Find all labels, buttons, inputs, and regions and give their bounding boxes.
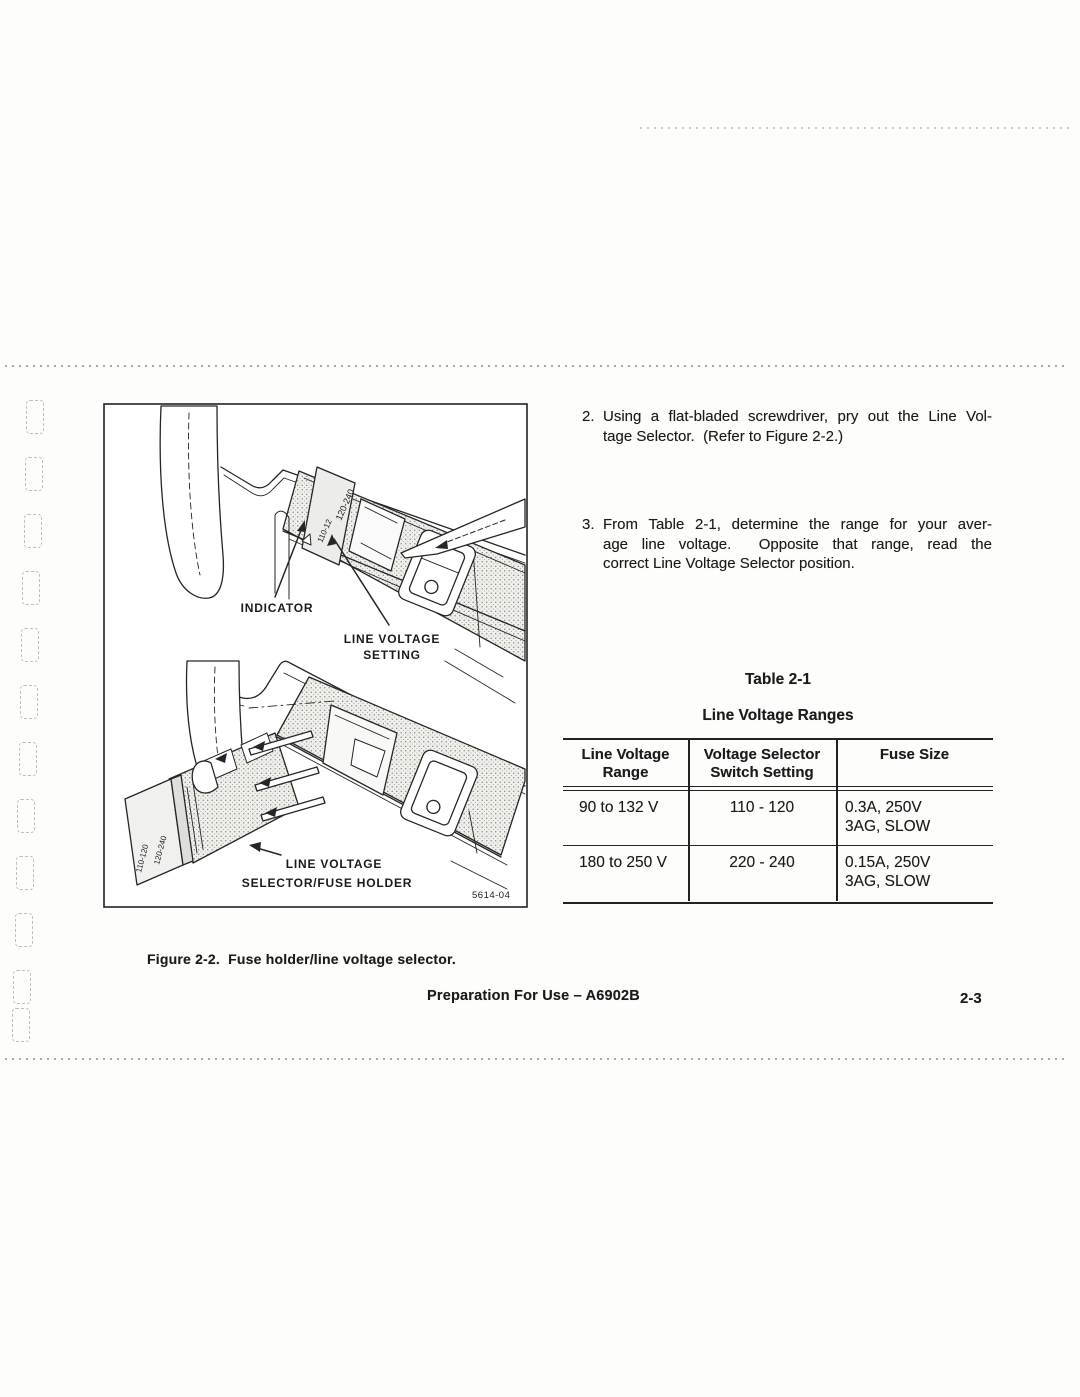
label-indicator: INDICATOR <box>241 601 314 615</box>
step-number: 2. <box>582 407 595 427</box>
line-voltage-table: Line Voltage Range Voltage Selector Swit… <box>563 738 993 904</box>
cell-setting: 110 - 120 <box>688 791 836 845</box>
col-header-range: Line Voltage Range <box>563 740 688 786</box>
cell-setting: 220 - 240 <box>688 846 836 902</box>
label-line-voltage-setting: LINE VOLTAGE <box>344 632 441 646</box>
scan-dotted-line-bottom <box>5 1058 1065 1060</box>
binder-hole <box>24 514 42 548</box>
page-number: 2-3 <box>960 990 982 1007</box>
figure-drawing: 120-240 110-12 INDICATOR LINE VOLTAGE SE… <box>103 403 528 908</box>
binder-hole <box>16 856 34 890</box>
col-header-switch-setting: Voltage Selector Switch Setting <box>688 740 836 786</box>
figure-part-number: 5614-04 <box>472 890 510 901</box>
scan-dotted-line-top <box>640 127 1070 129</box>
column-divider <box>688 740 690 901</box>
col-header-fuse-size: Fuse Size <box>836 740 993 786</box>
binder-hole <box>22 571 40 605</box>
figure-2-2: 120-240 110-12 INDICATOR LINE VOLTAGE SE… <box>103 403 528 908</box>
binder-hole <box>13 970 31 1004</box>
binder-hole <box>26 400 44 434</box>
cell-range: 90 to 132 V <box>563 791 688 845</box>
cell-fuse: 0.3A, 250V 3AG, SLOW <box>836 791 993 845</box>
binder-hole <box>17 799 35 833</box>
binder-hole <box>15 913 33 947</box>
step-text-line: age line voltage. Opposite that range, r… <box>603 535 992 555</box>
column-divider <box>836 740 838 901</box>
label-selector-fuse-holder: SELECTOR/FUSE HOLDER <box>242 876 412 890</box>
binder-hole <box>25 457 43 491</box>
binder-hole <box>21 628 39 662</box>
page-footer: Preparation For Use – A6902B <box>427 988 640 1004</box>
cell-fuse: 0.15A, 250V 3AG, SLOW <box>836 846 993 902</box>
table-subtitle: Line Voltage Ranges <box>563 707 993 725</box>
step-text-line: correct Line Voltage Selector position. <box>603 554 992 574</box>
cell-range: 180 to 250 V <box>563 846 688 902</box>
step-text-line: Using a flat-bladed screwdriver, pry out… <box>603 407 992 427</box>
binder-hole <box>12 1008 30 1042</box>
binder-hole <box>19 742 37 776</box>
figure-caption: Figure 2-2. Fuse holder/line voltage sel… <box>147 951 456 967</box>
table-title: Table 2-1 <box>563 671 993 689</box>
label-selector-fuse-holder: LINE VOLTAGE <box>286 857 383 871</box>
step-text-line: tage Selector. (Refer to Figure 2-2.) <box>603 427 992 447</box>
instruction-step-2: 2. Using a flat-bladed screwdriver, pry … <box>582 407 992 446</box>
instruction-step-3: 3. From Table 2-1, determine the range f… <box>582 515 992 574</box>
table-row: 180 to 250 V 220 - 240 0.15A, 250V 3AG, … <box>563 846 993 902</box>
scan-dotted-line-middle <box>5 365 1065 367</box>
binder-hole <box>20 685 38 719</box>
label-line-voltage-setting: SETTING <box>363 648 421 662</box>
step-text-line: From Table 2-1, determine the range for … <box>603 515 992 535</box>
manual-page: 2. Using a flat-bladed screwdriver, pry … <box>0 0 1080 1397</box>
table-row: 90 to 132 V 110 - 120 0.3A, 250V 3AG, SL… <box>563 791 993 846</box>
step-number: 3. <box>582 515 595 535</box>
table-header-row: Line Voltage Range Voltage Selector Swit… <box>563 740 993 786</box>
